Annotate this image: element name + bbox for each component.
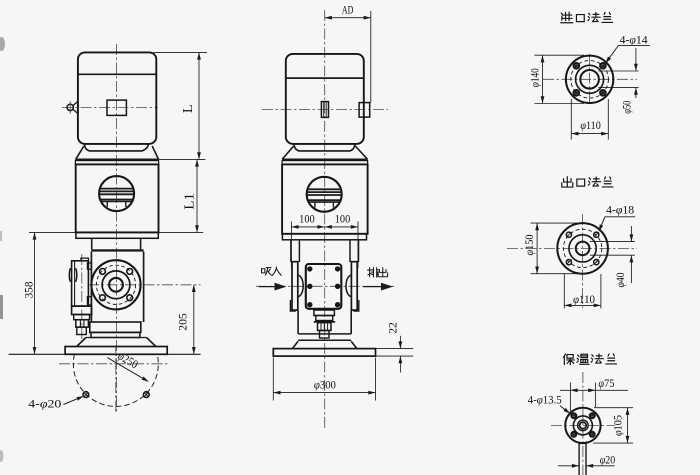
svg-text:φ150: φ150	[522, 235, 536, 256]
svg-text:4-φ20: 4-φ20	[28, 397, 61, 411]
svg-text:φ50: φ50	[620, 101, 634, 114]
svg-text:φ20: φ20	[600, 453, 616, 467]
svg-text:φ75: φ75	[598, 376, 614, 390]
svg-text:358: 358	[22, 282, 36, 299]
svg-text:205: 205	[176, 313, 190, 331]
svg-text:φ110: φ110	[573, 292, 595, 306]
svg-text:4-φ14: 4-φ14	[620, 32, 648, 46]
svg-text:φ40: φ40	[613, 273, 627, 288]
svg-text:φ300: φ300	[314, 377, 336, 391]
svg-text:L1: L1	[183, 193, 198, 210]
svg-text:4-φ13.5: 4-φ13.5	[528, 394, 562, 406]
svg-text:100: 100	[299, 212, 315, 226]
svg-text:4-φ18: 4-φ18	[606, 203, 634, 217]
svg-text:22: 22	[385, 322, 399, 334]
svg-text:AD: AD	[342, 2, 354, 16]
svg-text:φ105: φ105	[610, 415, 624, 436]
svg-text:φ140: φ140	[527, 68, 541, 87]
svg-text:100: 100	[335, 212, 351, 226]
svg-text:L: L	[181, 104, 196, 113]
svg-text:φ110: φ110	[580, 118, 601, 132]
